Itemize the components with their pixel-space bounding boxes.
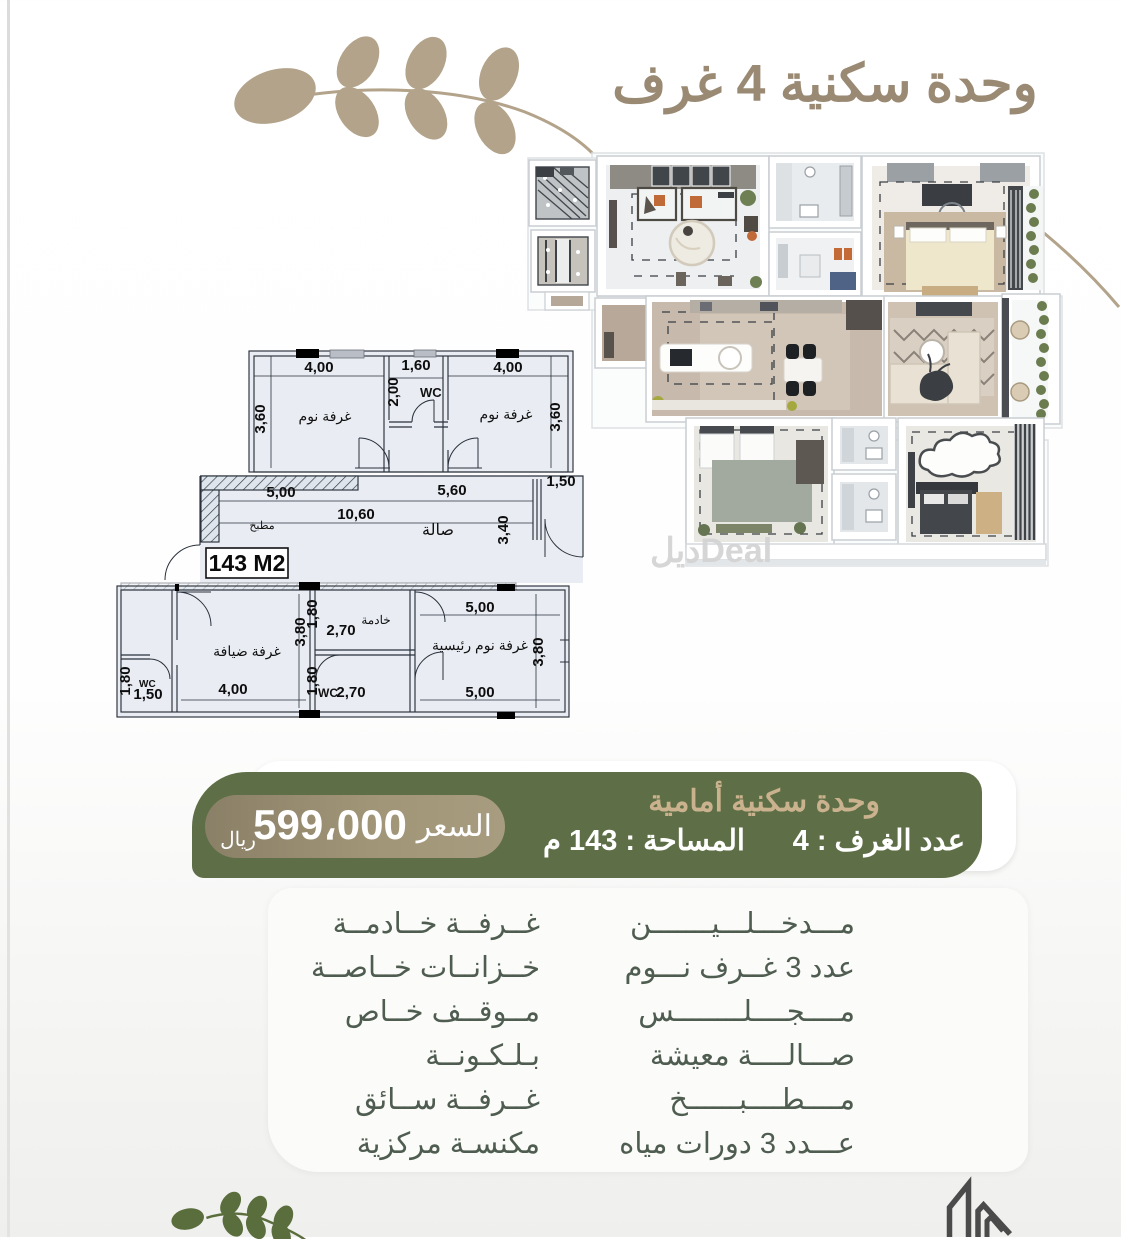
- svg-text:غرفة ضيافة: غرفة ضيافة: [213, 643, 281, 660]
- svg-text:غرفة نوم: غرفة نوم: [480, 406, 533, 423]
- svg-text:WC: WC: [318, 686, 338, 700]
- svg-text:3,40: 3,40: [495, 515, 512, 544]
- svg-text:143 M2: 143 M2: [209, 550, 286, 576]
- svg-text:ديلDeal: ديلDeal: [650, 532, 772, 570]
- svg-text:5,00: 5,00: [465, 599, 494, 616]
- svg-text:1,80: 1,80: [117, 666, 134, 695]
- svg-text:2,00: 2,00: [385, 377, 402, 406]
- svg-text:10,60: 10,60: [337, 506, 375, 523]
- svg-text:4,00: 4,00: [304, 359, 333, 376]
- svg-text:3,80: 3,80: [292, 617, 309, 646]
- svg-text:5,00: 5,00: [266, 484, 295, 501]
- svg-text:مطبخ: مطبخ: [249, 520, 274, 532]
- svg-text:2,70: 2,70: [326, 622, 355, 639]
- svg-text:صالة: صالة: [422, 522, 454, 539]
- svg-text:1,60: 1,60: [401, 357, 430, 374]
- svg-text:خادمة: خادمة: [361, 613, 390, 627]
- svg-text:3,60: 3,60: [252, 404, 269, 433]
- svg-text:3,60: 3,60: [547, 402, 564, 431]
- svg-text:1,50: 1,50: [546, 473, 575, 490]
- svg-text:غرفة نوم رئيسية: غرفة نوم رئيسية: [432, 637, 528, 654]
- svg-text:2,70: 2,70: [336, 684, 365, 701]
- svg-text:5,60: 5,60: [437, 482, 466, 499]
- svg-text:غرفة نوم: غرفة نوم: [299, 408, 352, 425]
- svg-text:WC: WC: [139, 679, 156, 690]
- svg-text:4,00: 4,00: [493, 359, 522, 376]
- svg-text:5,00: 5,00: [465, 684, 494, 701]
- svg-text:4,00: 4,00: [218, 681, 247, 698]
- svg-text:WC: WC: [420, 385, 442, 400]
- svg-text:3,80: 3,80: [530, 637, 547, 666]
